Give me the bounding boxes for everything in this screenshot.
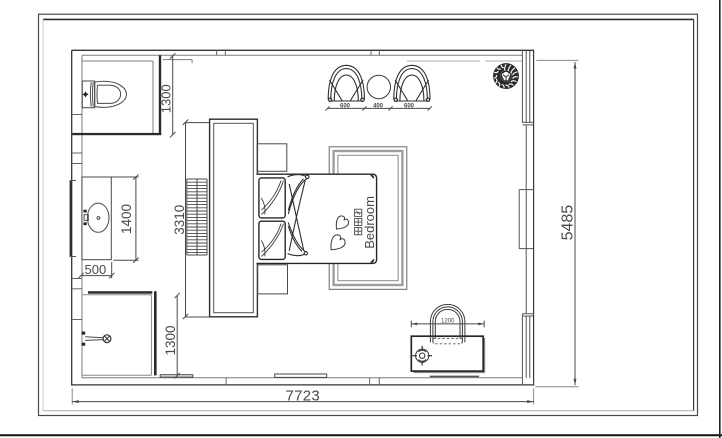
- svg-text:1400: 1400: [119, 204, 134, 234]
- svg-text:7723: 7723: [286, 387, 321, 404]
- svg-text:500: 500: [85, 262, 107, 277]
- svg-text:3310: 3310: [172, 205, 187, 235]
- svg-text:Bedroom: Bedroom: [362, 196, 377, 249]
- svg-text:5485: 5485: [560, 205, 577, 241]
- svg-text:1300: 1300: [159, 84, 174, 113]
- svg-text:600: 600: [340, 104, 351, 110]
- svg-text:1200: 1200: [441, 319, 455, 325]
- svg-text:400: 400: [373, 104, 384, 110]
- svg-text:1300: 1300: [163, 325, 178, 355]
- svg-text:600: 600: [404, 104, 415, 110]
